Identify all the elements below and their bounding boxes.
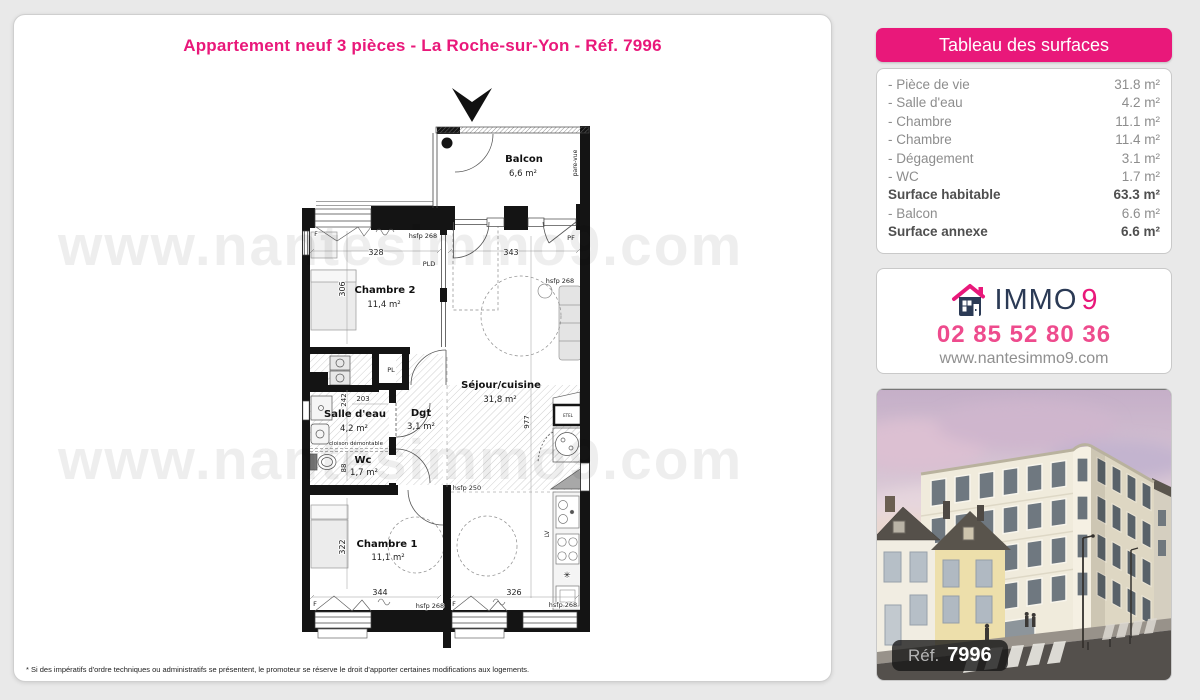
svg-text:1,7 m²: 1,7 m² [350, 468, 378, 478]
svg-text:203: 203 [356, 395, 369, 403]
building-photo [877, 389, 1172, 681]
svg-text:6,6 m²: 6,6 m² [509, 169, 537, 179]
page-title: Appartement neuf 3 pièces - La Roche-sur… [13, 36, 832, 56]
ref-number: 7996 [947, 644, 992, 667]
flyer-page: Appartement neuf 3 pièces - La Roche-sur… [0, 0, 1200, 700]
surfaces-panel: - Pièce de vie31.8 m²- Salle d'eau4.2 m²… [876, 68, 1172, 254]
svg-text:11,4 m²: 11,4 m² [367, 300, 400, 310]
house-icon [950, 282, 990, 318]
svg-text:306: 306 [338, 281, 347, 296]
agency-website: www.nantesimmo9.com [877, 350, 1171, 368]
svg-text:343: 343 [503, 248, 518, 257]
kitchen-counter [553, 492, 582, 610]
svg-text:Balcon: Balcon [505, 154, 543, 165]
svg-text:F: F [452, 600, 456, 608]
svg-text:F: F [313, 600, 317, 608]
svg-text:242: 242 [340, 393, 348, 406]
surface-row: - WC1.7 m² [888, 168, 1160, 186]
photo-card: Réf. 7996 [876, 388, 1172, 681]
svg-text:322: 322 [338, 539, 347, 554]
svg-text:326: 326 [506, 588, 521, 597]
svg-text:PLD: PLD [423, 260, 436, 268]
agency-card: IMMO9 02 85 52 80 36 www.nantesimmo9.com [876, 268, 1172, 374]
svg-text:F: F [314, 230, 318, 238]
surfaces-table: - Pièce de vie31.8 m²- Salle d'eau4.2 m²… [888, 76, 1160, 242]
surface-row: - Chambre11.1 m² [888, 113, 1160, 131]
svg-text:PL: PL [387, 366, 395, 374]
surface-row: Surface habitable63.3 m² [888, 186, 1160, 204]
thin-walls [316, 127, 589, 347]
svg-text:hsfp 268: hsfp 268 [416, 602, 444, 610]
svg-text:977: 977 [523, 415, 531, 428]
svg-text:Séjour/cuisine: Séjour/cuisine [461, 379, 541, 391]
svg-text:hsfp 268: hsfp 268 [549, 601, 577, 609]
surface-row: - Chambre11.4 m² [888, 131, 1160, 149]
surface-row: Surface annexe6.6 m² [888, 223, 1160, 241]
surface-row: - Dégagement3.1 m² [888, 150, 1160, 168]
agency-logo: IMMO9 [877, 282, 1171, 318]
surfaces-header: Tableau des surfaces [876, 28, 1172, 62]
north-arrow-icon [452, 88, 492, 122]
surface-row: - Salle d'eau4.2 m² [888, 94, 1160, 112]
svg-text:hsfp 268: hsfp 268 [409, 232, 437, 240]
svg-text:PF: PF [567, 234, 575, 242]
svg-text:pare-vue: pare-vue [572, 149, 579, 176]
floor-plan: Balcon6,6 m²Chambre 211,4 m²Séjour/cuisi… [280, 80, 600, 655]
ref-label: Réf. [908, 646, 939, 666]
svg-text:✳: ✳ [563, 571, 571, 581]
agency-phone: 02 85 52 80 36 [877, 321, 1171, 349]
svg-text:LV: LV [544, 530, 551, 538]
svg-text:31,8 m²: 31,8 m² [483, 395, 516, 405]
svg-text:344: 344 [372, 588, 387, 597]
svg-text:hsfp 250: hsfp 250 [453, 484, 481, 492]
brand-text: IMMO [994, 284, 1077, 317]
footnote: * Si des impératifs d'ordre techniques o… [26, 665, 529, 674]
surface-row: - Balcon6.6 m² [888, 205, 1160, 223]
svg-text:Wc: Wc [355, 455, 372, 466]
brand-9: 9 [1081, 284, 1097, 317]
surface-row: - Pièce de vie31.8 m² [888, 76, 1160, 94]
svg-text:ETEL: ETEL [563, 413, 573, 418]
svg-text:88: 88 [340, 464, 348, 473]
svg-text:11,1 m²: 11,1 m² [371, 553, 404, 563]
svg-text:328: 328 [368, 248, 383, 257]
svg-text:3,1 m²: 3,1 m² [407, 422, 435, 432]
ref-badge: Réf. 7996 [892, 640, 1008, 671]
svg-text:4,2 m²: 4,2 m² [340, 424, 368, 434]
svg-text:Salle d'eau: Salle d'eau [324, 409, 386, 420]
svg-text:cloison démontable: cloison démontable [329, 440, 384, 447]
svg-text:Dgt: Dgt [411, 408, 431, 419]
svg-text:Chambre 2: Chambre 2 [355, 285, 416, 296]
svg-text:Chambre 1: Chambre 1 [357, 539, 418, 550]
svg-text:hsfp 268: hsfp 268 [546, 277, 574, 285]
